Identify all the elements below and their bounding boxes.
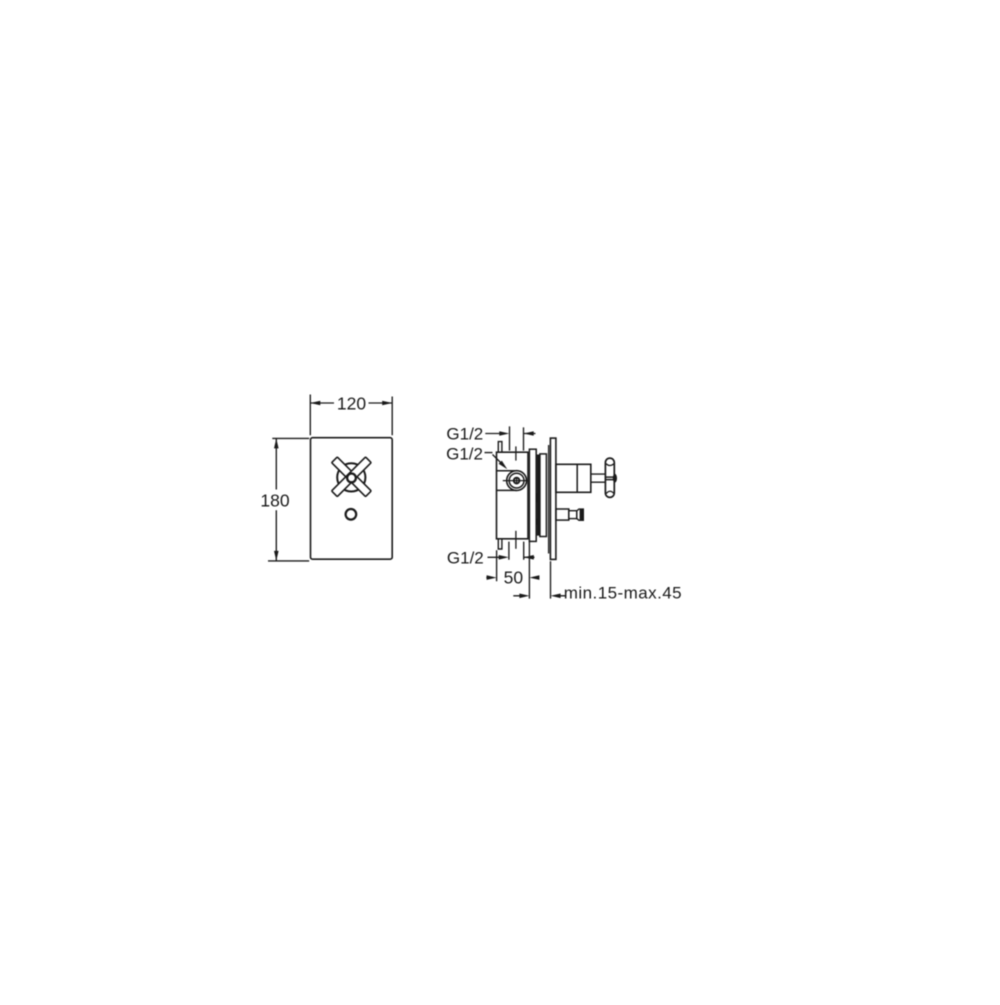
svg-text:G1/2: G1/2 [446,425,483,444]
svg-text:180: 180 [260,490,289,510]
svg-text:min.15-max.45: min.15-max.45 [564,584,682,603]
svg-text:120: 120 [337,393,366,413]
svg-text:50: 50 [504,567,524,587]
svg-text:G1/2: G1/2 [447,549,484,568]
svg-text:G1/2: G1/2 [446,445,483,464]
